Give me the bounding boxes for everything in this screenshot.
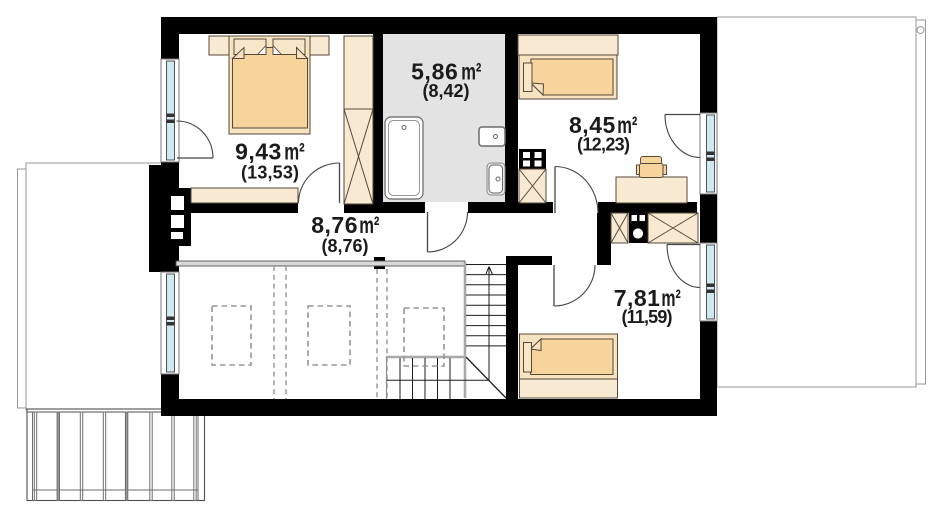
svg-text:(12,23): (12,23) (577, 135, 630, 155)
svg-text:(11,59): (11,59) (622, 307, 673, 327)
svg-text:8,76: 8,76 (311, 212, 357, 238)
svg-text:m²: m² (359, 213, 380, 238)
svg-text:(13,53): (13,53) (241, 162, 299, 182)
svg-text:(8,76): (8,76) (322, 236, 369, 256)
svg-text:(8,42): (8,42) (423, 81, 470, 101)
svg-text:9,43: 9,43 (235, 139, 281, 165)
